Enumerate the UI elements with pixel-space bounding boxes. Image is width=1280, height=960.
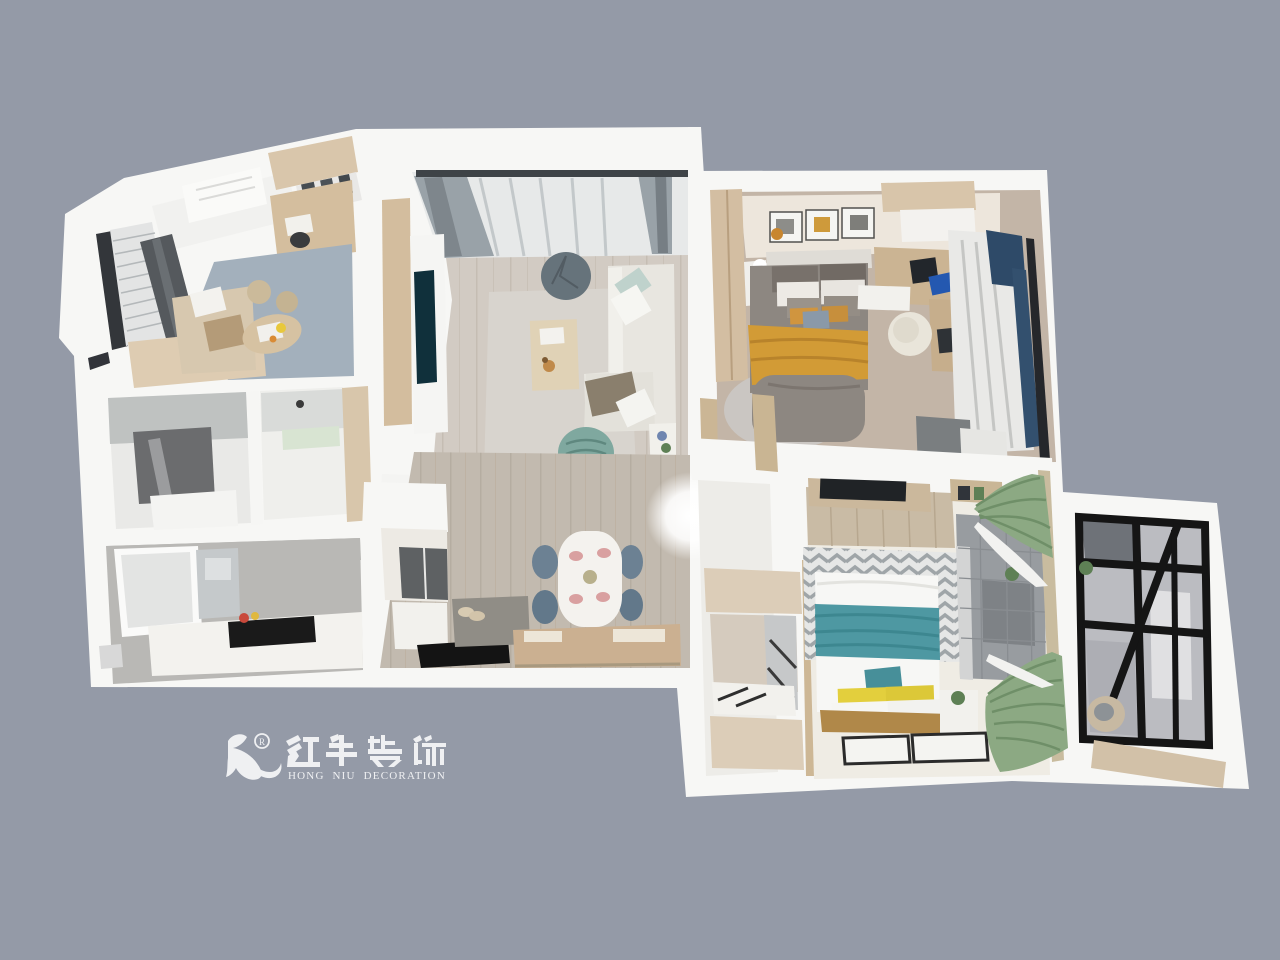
svg-text:HONG NIU DECORATION: HONG NIU DECORATION	[288, 770, 446, 782]
svg-text:R: R	[259, 737, 265, 747]
